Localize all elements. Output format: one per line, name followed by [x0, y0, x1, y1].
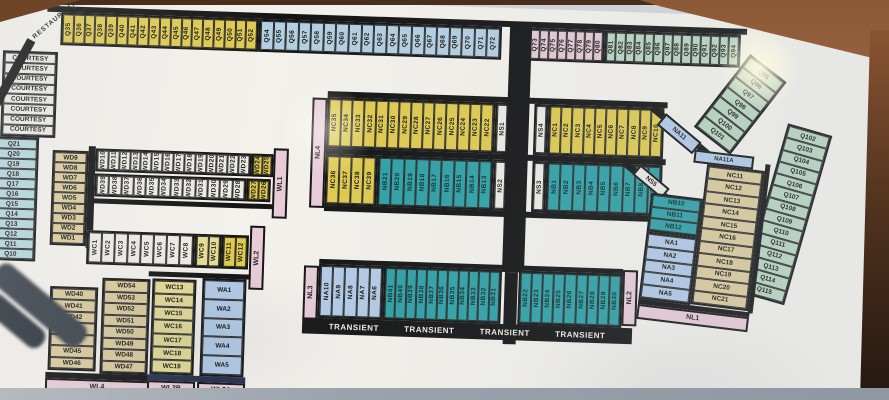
slip-nb30: NB30 — [608, 276, 621, 326]
slip-wc11: WC11 — [223, 237, 235, 267]
slip-wd25: WD25 — [262, 156, 272, 175]
slip-nb13: NB13 — [478, 161, 492, 208]
wd-row-bottom-highlight-group: WD27WD26 — [246, 178, 271, 202]
q-right-upper-group: Q95Q96Q97Q98Q99Q100Q101 — [694, 54, 787, 155]
wd-stack-column: WD9WD8WD7WD6WD5WD4WD3WD2WD1 — [50, 150, 89, 246]
na11a-label: NA11A — [714, 155, 734, 163]
slip-ns3: NS3 — [533, 163, 545, 210]
slip-wc15: WC15 — [153, 307, 193, 321]
slip-wc1: WC1 — [88, 232, 102, 262]
slip-wc5: WC5 — [140, 234, 154, 264]
slip-wd29: WD29 — [220, 180, 233, 199]
main-pier-upper — [502, 26, 532, 273]
slip-wc7: WC7 — [166, 235, 180, 265]
slip-wa3: WA3 — [203, 318, 244, 338]
wc-column-group: WC13WC14WC15WC16WC17WC18WC19 — [149, 278, 196, 375]
slip-wd15: WD15 — [151, 152, 162, 171]
slip-wd12: WD12 — [119, 151, 130, 170]
slip-wc16: WC16 — [153, 320, 193, 334]
slip-ns4: NS4 — [535, 106, 547, 153]
slip-q56: Q56 — [285, 22, 299, 51]
slip-wc13: WC13 — [154, 280, 194, 294]
slip-q61: Q61 — [348, 24, 362, 53]
slip-wc4: WC4 — [127, 234, 141, 264]
courtesy-column: COURTESYCOURTESYCOURTESYCOURTESYCOURTESY… — [0, 50, 58, 138]
wl3b-strip: WL3B — [147, 380, 195, 397]
slip-q71: Q71 — [474, 28, 488, 57]
slip-q67: Q67 — [424, 26, 438, 55]
nl4-label: NL4 — [315, 146, 322, 159]
q-left-column: Q21Q20Q19Q18Q17Q16Q15Q14Q13Q12Q11Q10 — [0, 136, 39, 262]
slip-wd23: WD23 — [238, 155, 249, 174]
slip-wc3: WC3 — [114, 233, 128, 263]
nl2-label: NL2 — [626, 291, 633, 304]
slip-wd33: WD33 — [170, 178, 183, 197]
slip-q65: Q65 — [398, 25, 412, 54]
slip-q94: Q94 — [728, 36, 738, 65]
wl1-label: WL1 — [277, 176, 284, 191]
slip-q55: Q55 — [273, 21, 287, 50]
slip-wd38: WD38 — [109, 176, 122, 195]
slip-q72: Q72 — [486, 28, 500, 57]
slip-wd1: WD1 — [52, 233, 84, 244]
nb-row2-left-group: NB21NB20NB19NB18NB17NB16NB15NB14NB13 — [376, 156, 494, 211]
wd-block-right-column: WD54WD53WD52WD51WD50WD49WD48WD47 — [99, 278, 150, 376]
q-top-green-group: Q81Q82Q83Q84Q85Q86Q87Q88Q89Q90Q91Q92Q93Q… — [604, 30, 741, 67]
slip-wd39: WD39 — [96, 175, 109, 194]
slip-wd35: WD35 — [146, 177, 159, 196]
slip-q58: Q58 — [310, 22, 324, 51]
wc-row-pale-group: WC9WC10 — [194, 234, 222, 269]
slip-wc17: WC17 — [152, 333, 192, 347]
slip-wd46: WD46 — [50, 357, 94, 370]
wl3a-label: WL3A — [211, 386, 231, 394]
wl3b-label: WL3B — [161, 385, 181, 393]
wc-row-group: WC1WC2WC3WC4WC5WC6WC7WC8 — [86, 230, 195, 268]
wl2-strip: WL2 — [248, 226, 265, 290]
slip-wd22: WD22 — [227, 155, 238, 174]
slip-wd31: WD31 — [195, 179, 208, 198]
courtesy-slip-courtesy: COURTESY — [2, 124, 53, 136]
slip-wd27: WD27 — [248, 180, 259, 199]
q-top-pink-group: Q73Q74Q75Q76Q77Q78Q79Q80 — [528, 28, 605, 64]
slip-wd11: WD11 — [108, 151, 119, 170]
slip-q80: Q80 — [593, 32, 603, 61]
na-bottom-row-group: NA10NA9NA8NA7NA6 — [317, 264, 384, 320]
nl1-label: NL1 — [686, 314, 700, 323]
slip-wc10: WC10 — [208, 236, 220, 266]
slip-wd10: WD10 — [97, 150, 108, 169]
slip-wc8: WC8 — [179, 235, 193, 265]
wl2-label: WL2 — [253, 250, 260, 265]
wl3a-strip: WL3A — [197, 382, 245, 399]
slip-q60: Q60 — [336, 23, 350, 52]
slip-nb31: NB31 — [488, 272, 500, 322]
nb-bottom-right-group: NB22NB23NB24NB25NB26NB27NB28NB29NB30 — [517, 270, 623, 327]
slip-wc2: WC2 — [101, 233, 115, 263]
slip-wa4: WA4 — [202, 336, 243, 356]
wc-row-highlight-group: WC11WC12 — [221, 235, 249, 270]
nc-row2-yellow-group: NC36NC37NC38NC39 — [324, 154, 378, 207]
slip-wa5: WA5 — [201, 355, 242, 375]
na-right-column: NA1NA2NA3NA4NA5 — [638, 231, 698, 305]
slip-wd32: WD32 — [183, 178, 196, 197]
nb-right-column: NB10NB11NB12 — [647, 193, 703, 238]
slip-q59: Q59 — [323, 23, 337, 52]
slip-nc22: NC22 — [480, 104, 493, 151]
nc-row1-right-group: NC1NC2NC3NC4NC5NC6NC7NC8NC9NC10 — [547, 104, 665, 159]
map-board: RESTAURANT Q35Q36Q37Q38Q39Q40Q41Q42Q43Q4… — [0, 0, 889, 400]
slip-wd36: WD36 — [133, 177, 146, 196]
transient-label-transient: TRANSIENT — [555, 329, 606, 340]
slip-wd47: WD47 — [101, 360, 145, 373]
right-slip-grid: NA11A NC11NC12NC13NC14NC15NC16NC17NC18NC… — [635, 143, 776, 338]
slip-q57: Q57 — [298, 22, 312, 51]
slip-wd34: WD34 — [158, 177, 171, 196]
slip-wd30: WD30 — [207, 179, 220, 198]
wa-column-group: WA1WA2WA3WA4WA5 — [199, 278, 246, 377]
wd-row-top-group: WD10WD11WD12WD13WD14WD15WD16WD17WD18WD19… — [95, 148, 252, 176]
marina-map-photo: { "title": "Marina slip map board", "res… — [0, 0, 889, 400]
slip-nc39: NC39 — [362, 157, 376, 204]
nc-row1-left-group: NC35NC34NC33NC32NC31NC30NC29NC28NC27NC26… — [326, 97, 496, 154]
slip-q10: Q10 — [0, 248, 33, 260]
slip-wc12: WC12 — [234, 237, 246, 267]
slip-wc18: WC18 — [152, 346, 192, 360]
slip-q66: Q66 — [411, 26, 425, 55]
transient-label-transient: TRANSIENT — [329, 322, 380, 333]
transient-label-transient: TRANSIENT — [404, 324, 455, 335]
slip-q70: Q70 — [461, 27, 475, 56]
slip-wa2: WA2 — [203, 299, 244, 319]
slip-wd21: WD21 — [217, 154, 228, 173]
na11-label: NA11 — [671, 126, 688, 142]
nb-bottom-left-group: NB41NB40NB39NB38NB37NB36NB35NB34NB33NB32… — [382, 266, 502, 324]
q-top-yellow-group: Q35Q36Q37Q38Q39Q40Q41Q42Q43Q44Q45Q46Q47Q… — [60, 12, 259, 52]
nl2-strip: NL2 — [621, 270, 638, 326]
wd-row-top-highlight-group: WD24WD25 — [251, 154, 274, 178]
q-top-blue-group: Q54Q55Q56Q57Q58Q59Q60Q61Q62Q63Q64Q65Q66Q… — [258, 19, 502, 60]
nl3-label: NL3 — [307, 286, 314, 299]
slip-wd26: WD26 — [258, 181, 269, 200]
slip-wd20: WD20 — [206, 154, 217, 173]
slip-wd19: WD19 — [195, 154, 206, 173]
slip-wd14: WD14 — [141, 152, 152, 171]
slip-q68: Q68 — [436, 27, 450, 56]
slip-wc6: WC6 — [153, 234, 167, 264]
slip-q69: Q69 — [449, 27, 463, 56]
slip-wd37: WD37 — [121, 176, 134, 195]
slip-wd13: WD13 — [130, 152, 141, 171]
slip-wd17: WD17 — [173, 153, 184, 172]
wl4-strip: WL4 — [45, 378, 149, 396]
slip-na6: NA6 — [368, 268, 382, 318]
slip-wa1: WA1 — [204, 280, 245, 300]
wl1-strip: WL1 — [272, 148, 289, 218]
slip-q62: Q62 — [361, 24, 375, 53]
transient-label-transient: TRANSIENT — [479, 327, 530, 338]
slip-q63: Q63 — [373, 25, 387, 54]
slip-wd18: WD18 — [184, 153, 195, 172]
slip-q54: Q54 — [260, 21, 274, 50]
slip-wc19: WC19 — [151, 359, 191, 373]
slip-wd28: WD28 — [232, 180, 245, 199]
slip-q64: Q64 — [386, 25, 400, 54]
slip-wd16: WD16 — [162, 153, 173, 172]
slip-wc14: WC14 — [154, 294, 194, 308]
slip-q52: Q52 — [246, 20, 258, 49]
slip-wc9: WC9 — [196, 236, 208, 266]
wd-row-bottom-group: WD39WD38WD37WD36WD35WD34WD33WD32WD31WD30… — [94, 173, 247, 201]
wl4-label: WL4 — [89, 383, 104, 390]
